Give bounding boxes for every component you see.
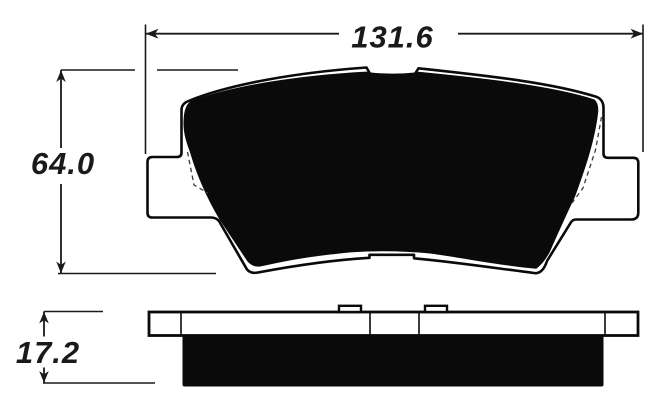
svg-text:17.2: 17.2	[16, 335, 80, 370]
svg-text:131.6: 131.6	[351, 20, 434, 55]
svg-text:64.0: 64.0	[31, 146, 95, 181]
